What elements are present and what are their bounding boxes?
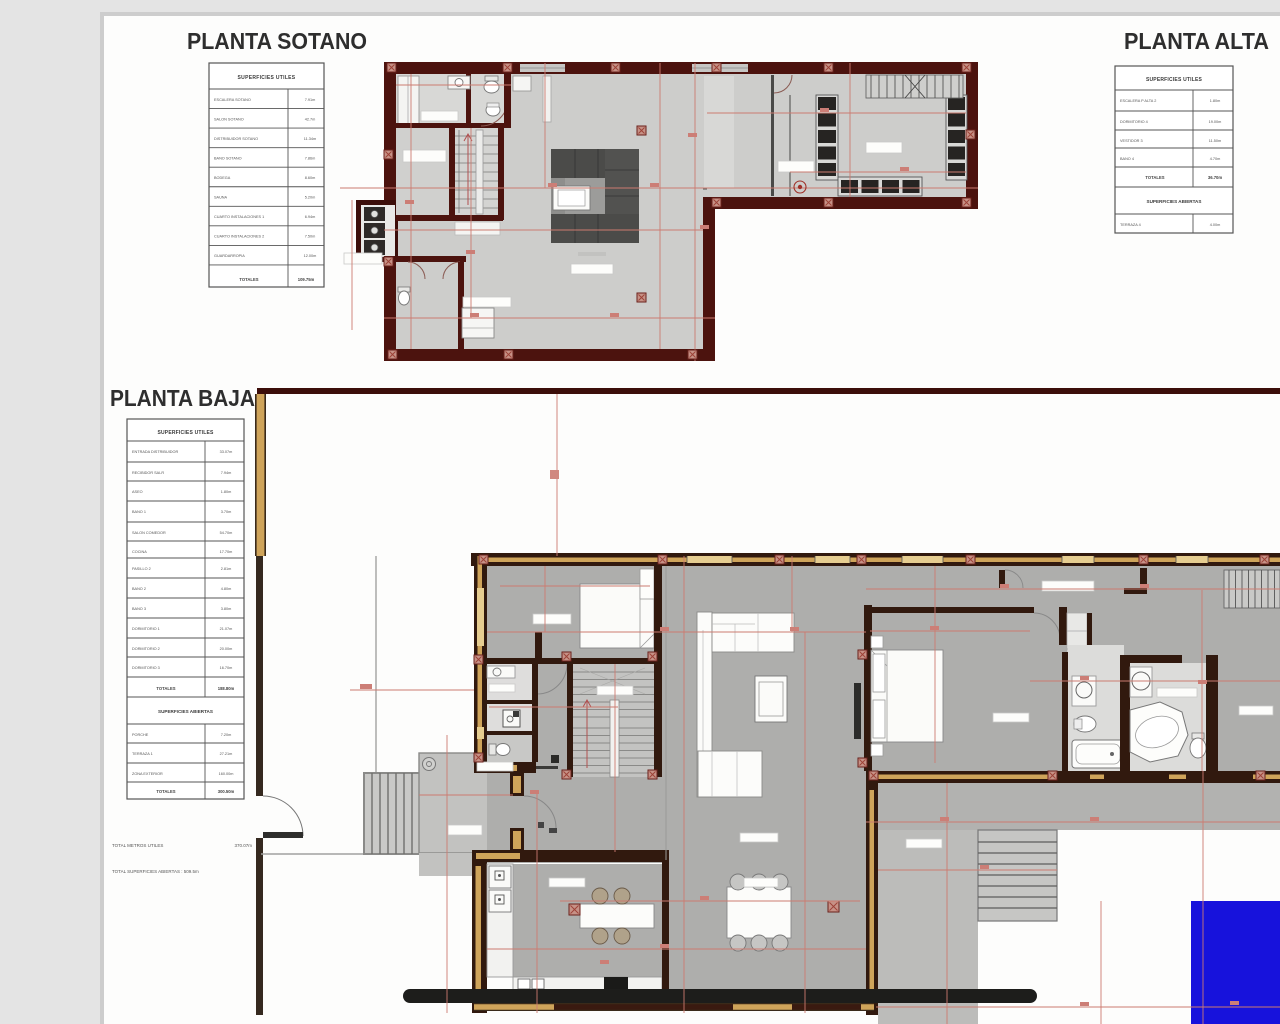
- svg-text:RECIBIDOR SALR: RECIBIDOR SALR: [132, 471, 164, 475]
- svg-text:36.70m: 36.70m: [1208, 175, 1222, 180]
- svg-text:7.94m: 7.94m: [221, 471, 232, 475]
- svg-text:11.50m: 11.50m: [1209, 139, 1221, 143]
- svg-text:7.50m: 7.50m: [305, 235, 316, 239]
- svg-text:TOTAL METROS UTILES: TOTAL METROS UTILES: [112, 843, 163, 848]
- svg-text:21.07m: 21.07m: [220, 627, 233, 631]
- svg-text:BANO 2: BANO 2: [132, 587, 146, 591]
- svg-text:CUARTO INSTALACIONES 2: CUARTO INSTALACIONES 2: [214, 235, 264, 239]
- svg-text:300.50m: 300.50m: [218, 789, 235, 794]
- svg-text:7.86m: 7.86m: [305, 156, 316, 160]
- svg-text:SUPERFICIES ABIERTAS: SUPERFICIES ABIERTAS: [1147, 199, 1202, 204]
- svg-text:ESCALERA P ALTA 2: ESCALERA P ALTA 2: [1120, 99, 1156, 103]
- svg-text:PASILLO 2: PASILLO 2: [132, 567, 151, 571]
- svg-text:16.70m: 16.70m: [220, 666, 233, 670]
- svg-text:TOTALES: TOTALES: [156, 686, 175, 691]
- svg-text:1.80m: 1.80m: [221, 490, 232, 494]
- svg-text:3.80m: 3.80m: [221, 607, 232, 611]
- svg-text:DORMITORIO 3: DORMITORIO 3: [132, 666, 160, 670]
- svg-text:7.20m: 7.20m: [221, 733, 232, 737]
- svg-text:19.00m: 19.00m: [1209, 120, 1222, 124]
- svg-text:42.7m: 42.7m: [305, 117, 316, 121]
- svg-text:COCINA: COCINA: [132, 550, 147, 554]
- svg-text:PLANTA ALTA: PLANTA ALTA: [1124, 28, 1269, 54]
- svg-text:188.80m: 188.80m: [218, 686, 235, 691]
- svg-text:CUARTO INSTALACIONES 1: CUARTO INSTALACIONES 1: [214, 215, 264, 219]
- svg-text:SUPERFICIES UTILES: SUPERFICIES UTILES: [157, 430, 214, 436]
- svg-text:BODEGA: BODEGA: [214, 176, 231, 180]
- svg-text:BANO 1: BANO 1: [132, 510, 146, 514]
- svg-text:8.60m: 8.60m: [305, 176, 316, 180]
- svg-text:TOTALES: TOTALES: [1145, 175, 1164, 180]
- svg-text:ESCALERA SOTANO: ESCALERA SOTANO: [214, 98, 251, 102]
- svg-text:1.80m: 1.80m: [1210, 99, 1221, 103]
- svg-text:12.00m: 12.00m: [304, 254, 317, 258]
- svg-text:4.70m: 4.70m: [1210, 157, 1221, 161]
- svg-text:SUPERFICIES UTILES: SUPERFICIES UTILES: [1146, 77, 1203, 83]
- svg-text:2.81m: 2.81m: [221, 567, 232, 571]
- svg-text:160.00m: 160.00m: [219, 772, 234, 776]
- svg-text:SAUNA: SAUNA: [214, 196, 228, 200]
- svg-text:TOTALES: TOTALES: [239, 277, 258, 282]
- svg-text:11.34m: 11.34m: [304, 137, 316, 141]
- svg-text:109.75m: 109.75m: [298, 277, 315, 282]
- svg-text:17.70m: 17.70m: [220, 550, 233, 554]
- svg-text:SUPERFICIES UTILES: SUPERFICIES UTILES: [238, 75, 296, 81]
- svg-text:DISTRIBUIDOR SOTANO: DISTRIBUIDOR SOTANO: [214, 137, 258, 141]
- svg-text:BANO 4: BANO 4: [1120, 157, 1134, 161]
- svg-text:TOTALES: TOTALES: [156, 789, 175, 794]
- svg-text:DORMITORIO 2: DORMITORIO 2: [132, 647, 160, 651]
- svg-text:TERRAZA 4: TERRAZA 4: [1120, 223, 1141, 227]
- svg-text:6.94m: 6.94m: [305, 215, 316, 219]
- svg-text:7.91m: 7.91m: [305, 98, 316, 102]
- svg-text:3.70m: 3.70m: [221, 510, 232, 514]
- svg-text:370.07m: 370.07m: [234, 843, 252, 848]
- svg-text:GUARDARROPIA: GUARDARROPIA: [214, 254, 245, 258]
- svg-text:DORMITORIO 1: DORMITORIO 1: [132, 627, 160, 631]
- svg-text:27.21m: 27.21m: [220, 752, 233, 756]
- svg-text:TERRAZA 1: TERRAZA 1: [132, 752, 153, 756]
- svg-text:PLANTA SOTANO: PLANTA SOTANO: [187, 28, 367, 54]
- svg-text:DORMITORIO 4: DORMITORIO 4: [1120, 120, 1148, 124]
- svg-text:20.00m: 20.00m: [220, 647, 233, 651]
- svg-text:PLANTA BAJA: PLANTA BAJA: [110, 385, 255, 411]
- svg-text:PORCHE: PORCHE: [132, 733, 149, 737]
- svg-text:VESTIDOR 3: VESTIDOR 3: [1120, 139, 1143, 143]
- svg-text:ASEO: ASEO: [132, 490, 143, 494]
- svg-text:SUPERFICIES ABIERTAS: SUPERFICIES ABIERTAS: [158, 709, 213, 714]
- svg-text:SALON COMEDOR: SALON COMEDOR: [132, 531, 166, 535]
- svg-text:4.00m: 4.00m: [1210, 223, 1221, 227]
- svg-text:4.80m: 4.80m: [221, 587, 232, 591]
- svg-text:ENTRADA DISTRIBUIDOR: ENTRADA DISTRIBUIDOR: [132, 450, 178, 454]
- svg-text:BANO SOTANO: BANO SOTANO: [214, 156, 242, 160]
- svg-text:54.70m: 54.70m: [220, 531, 233, 535]
- svg-text:5.20m: 5.20m: [305, 196, 316, 200]
- svg-text:TOTAL SUPERFICIES ABIERTAS : 5: TOTAL SUPERFICIES ABIERTAS : 509.5m: [112, 869, 199, 874]
- svg-text:SALON SOTANO: SALON SOTANO: [214, 117, 244, 121]
- svg-text:BANO 3: BANO 3: [132, 607, 146, 611]
- svg-text:33.07m: 33.07m: [220, 450, 233, 454]
- svg-text:ZONA EXTERIOR: ZONA EXTERIOR: [132, 772, 163, 776]
